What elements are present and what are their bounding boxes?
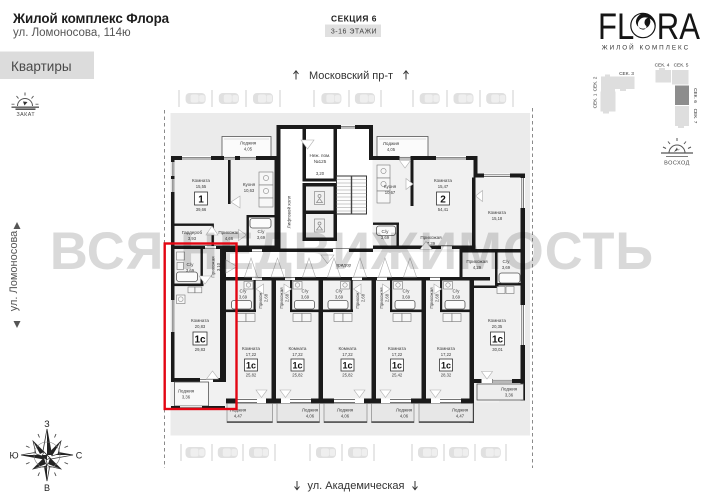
svg-text:Комната: Комната [488,210,506,215]
svg-text:Лоджия: Лоджия [396,408,413,413]
svg-text:1с: 1с [392,361,402,371]
svg-text:СЕК. 6: СЕК. 6 [692,88,698,103]
svg-text:3,69: 3,69 [239,295,248,300]
svg-text:15,18: 15,18 [492,216,503,221]
svg-text:ул. Академическая: ул. Академическая [307,480,404,492]
svg-text:С/у: С/у [336,289,344,294]
svg-text:4,06: 4,06 [306,414,315,419]
svg-text:1: 1 [198,195,204,206]
svg-text:2,68: 2,68 [385,293,390,302]
svg-text:Лоджия: Лоджия [178,389,195,394]
svg-text:2,68: 2,68 [361,293,366,302]
svg-text:Московский пр-т: Московский пр-т [309,70,393,82]
svg-text:СЕК. 1: СЕК. 1 [593,93,599,108]
svg-text:29,83: 29,83 [195,347,206,352]
svg-text:17,22: 17,22 [441,352,452,357]
svg-text:3,36: 3,36 [505,393,514,398]
svg-text:15,47: 15,47 [438,184,449,189]
svg-text:Комната: Комната [437,346,455,351]
svg-text:С: С [76,451,83,461]
svg-text:20,83: 20,83 [195,324,206,329]
svg-text:ВСЯ НЕДВИЖИМОСТЬ: ВСЯ НЕДВИЖИМОСТЬ [50,222,654,281]
svg-text:3,69: 3,69 [335,295,344,300]
svg-text:FL: FL [598,7,634,48]
svg-text:СЕК. 5: СЕК. 5 [674,63,689,69]
svg-text:В: В [44,483,50,493]
svg-text:2,68: 2,68 [435,293,440,302]
svg-text:ЖИЛОЙ КОМПЛЕКС: ЖИЛОЙ КОМПЛЕКС [602,43,690,52]
svg-text:25,42: 25,42 [392,373,403,378]
svg-text:Комната: Комната [488,318,506,323]
svg-text:10,63: 10,63 [244,188,255,193]
svg-text:С/у: С/у [302,289,310,294]
svg-text:Лоджия: Лоджия [383,141,400,146]
svg-text:3,36: 3,36 [182,395,191,400]
svg-text:20,35: 20,35 [492,324,503,329]
svg-text:СЕК. 4: СЕК. 4 [655,63,670,69]
svg-text:2,68: 2,68 [285,293,290,302]
svg-text:17,22: 17,22 [246,352,257,357]
svg-text:1с: 1с [441,361,451,371]
svg-text:30,01: 30,01 [492,347,503,352]
svg-text:3-16 ЭТАЖИ: 3-16 ЭТАЖИ [331,29,377,36]
svg-text:Неж. пом.: Неж. пом. [310,153,331,158]
svg-text:З: З [44,419,49,429]
svg-text:Лоджия: Лоджия [337,408,354,413]
svg-text:С/у: С/у [240,289,248,294]
svg-text:Комната: Комната [242,346,260,351]
svg-text:Жилой комплекс Флора: Жилой комплекс Флора [12,11,170,26]
svg-text:ВОСХОД: ВОСХОД [664,161,690,167]
svg-text:4,47: 4,47 [456,414,465,419]
svg-text:1с: 1с [246,361,256,371]
svg-text:Комната: Комната [339,346,357,351]
svg-text:17,22: 17,22 [342,352,353,357]
svg-text:Комната: Комната [434,178,452,183]
svg-text:4,05: 4,05 [244,147,253,152]
svg-text:3,20: 3,20 [316,171,325,176]
svg-text:С/у: С/у [403,289,411,294]
svg-text:Лоджия: Лоджия [302,408,319,413]
svg-text:3,69: 3,69 [402,295,411,300]
svg-text:Лоджия: Лоджия [452,408,469,413]
svg-text:СЕК. 3: СЕК. 3 [619,71,634,77]
svg-text:15,55: 15,55 [196,184,207,189]
svg-text:3,69: 3,69 [452,295,461,300]
svg-text:Кухня: Кухня [243,182,256,187]
svg-text:СЕК. 7: СЕК. 7 [692,109,698,124]
svg-text:54,41: 54,41 [438,207,449,212]
svg-text:25,82: 25,82 [292,373,303,378]
svg-text:4,06: 4,06 [400,414,409,419]
svg-text:4,05: 4,05 [387,147,396,152]
svg-text:28,32: 28,32 [441,373,452,378]
svg-text:Ю: Ю [9,451,18,461]
svg-text:Лоджия: Лоджия [501,387,518,392]
svg-text:Квартиры: Квартиры [11,59,72,74]
svg-text:Прихожая: Прихожая [279,287,284,309]
svg-text:25,82: 25,82 [342,373,353,378]
svg-text:Кухня: Кухня [384,184,397,189]
svg-text:1с: 1с [492,335,504,346]
svg-text:25,82: 25,82 [246,373,257,378]
svg-text:39,66: 39,66 [196,207,207,212]
svg-text:ул. Ломоносова, 114ю: ул. Ломоносова, 114ю [13,27,131,39]
svg-text:Комната: Комната [289,346,307,351]
svg-text:СЕК. 2: СЕК. 2 [593,76,599,91]
svg-text:2: 2 [440,195,446,206]
svg-text:ул. Ломоносова: ул. Ломоносова [8,230,20,311]
svg-text:4,47: 4,47 [234,414,243,419]
svg-text:ЗАКАТ: ЗАКАТ [16,112,35,118]
svg-text:3,69: 3,69 [301,295,310,300]
svg-text:Прихожая: Прихожая [429,287,434,309]
svg-text:Лоджия: Лоджия [240,141,257,146]
svg-text:№125: №125 [314,159,327,164]
svg-text:СЕКЦИЯ 6: СЕКЦИЯ 6 [331,14,377,24]
svg-text:17,22: 17,22 [292,352,303,357]
svg-text:Комната: Комната [191,318,209,323]
svg-text:С/у: С/у [453,289,461,294]
svg-text:2,68: 2,68 [264,293,269,302]
svg-text:17,22: 17,22 [392,352,403,357]
svg-text:1с: 1с [342,361,352,371]
svg-text:Комната: Комната [192,178,210,183]
svg-text:4,06: 4,06 [341,414,350,419]
svg-text:10,67: 10,67 [385,190,396,195]
svg-text:RA: RA [657,7,700,48]
svg-text:1с: 1с [194,335,206,346]
svg-text:1с: 1с [292,361,302,371]
svg-text:Комната: Комната [388,346,406,351]
